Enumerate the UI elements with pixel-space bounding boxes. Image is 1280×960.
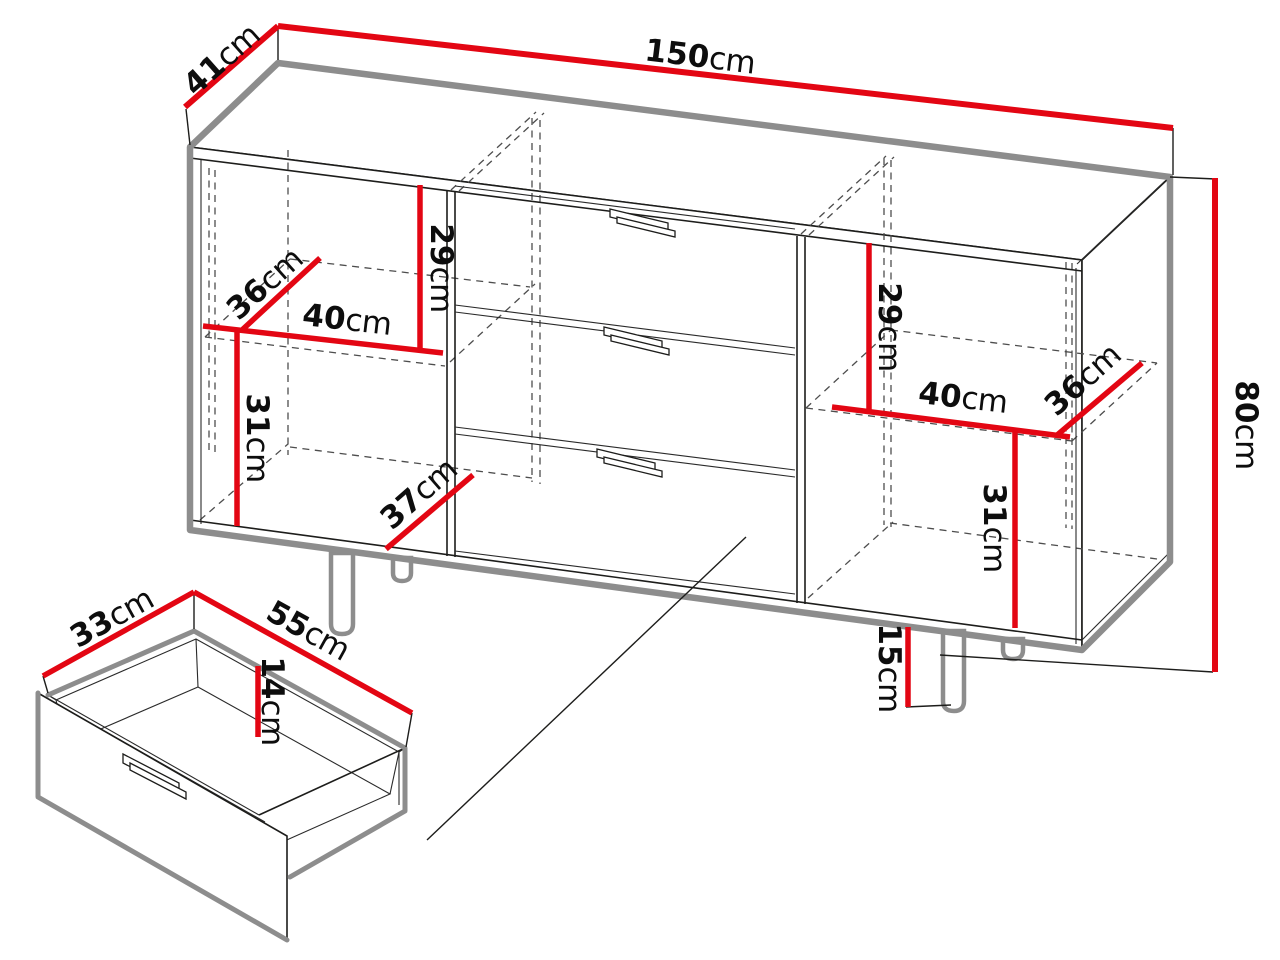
label-left-upper-height: 29cm (423, 223, 459, 312)
label-left-lower-height: 31cm (239, 393, 275, 482)
label-leg-height: 15cm (871, 623, 907, 712)
label-overall-width: 150cm (643, 32, 758, 81)
label-overall-height: 80cm (1228, 380, 1264, 469)
leg-front-right (943, 631, 964, 711)
cabinet-body (190, 63, 1170, 711)
label-drawer-inner-height: 14cm (254, 656, 290, 745)
leg-front-left (331, 553, 353, 634)
label-right-lower-height: 31cm (976, 483, 1012, 572)
furniture-dimension-diagram: 150cm 41cm 80cm 29cm 36cm 40cm 31cm 37cm… (0, 0, 1280, 960)
label-drawer-depth: 33cm (64, 581, 160, 656)
sideboard-technical-drawing: 150cm 41cm 80cm 29cm 36cm 40cm 31cm 37cm… (0, 0, 1280, 960)
label-right-upper-height: 29cm (871, 282, 907, 371)
